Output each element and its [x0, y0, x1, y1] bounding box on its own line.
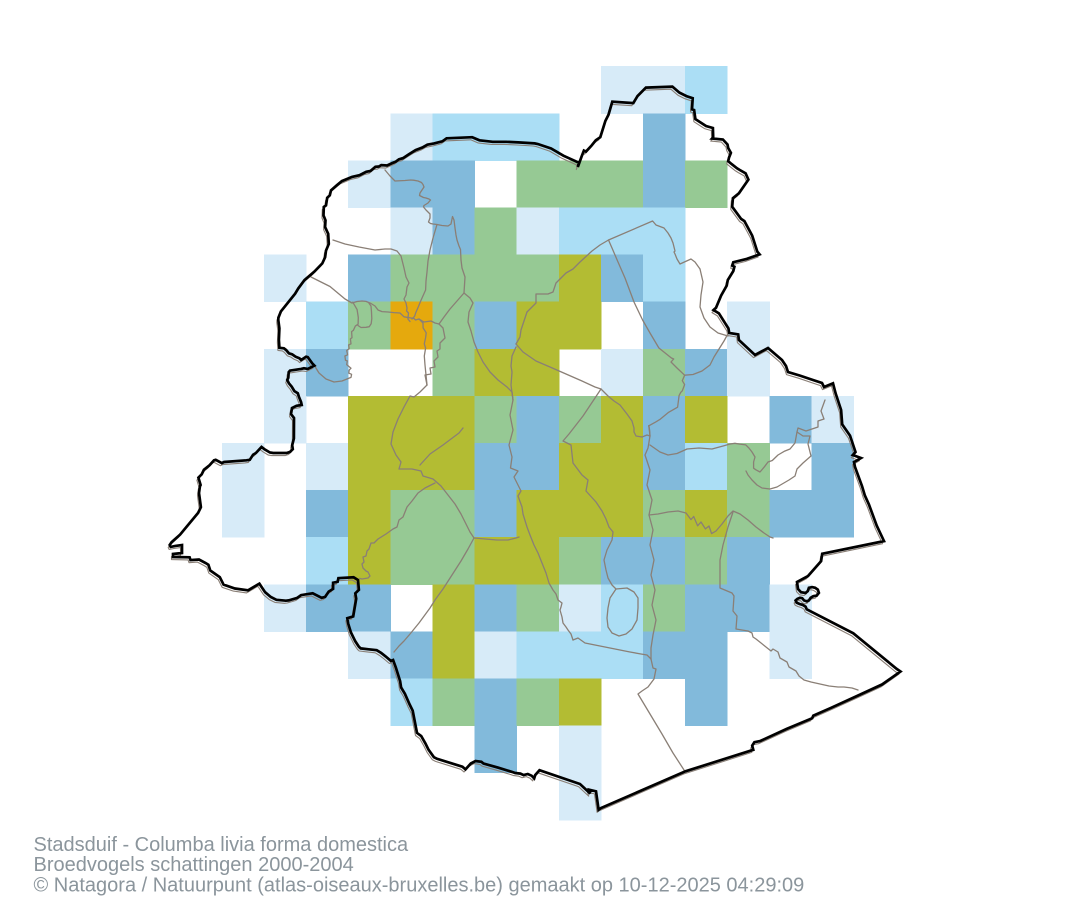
- svg-text:© Natagora / Natuurpunt (atlas: © Natagora / Natuurpunt (atlas-oiseaux-b…: [34, 875, 805, 897]
- svg-text:Stadsduif - Columba livia form: Stadsduif - Columba livia forma domestic…: [34, 834, 409, 856]
- svg-text:Broedvogels schattingen 2000-2: Broedvogels schattingen 2000-2004: [34, 854, 354, 876]
